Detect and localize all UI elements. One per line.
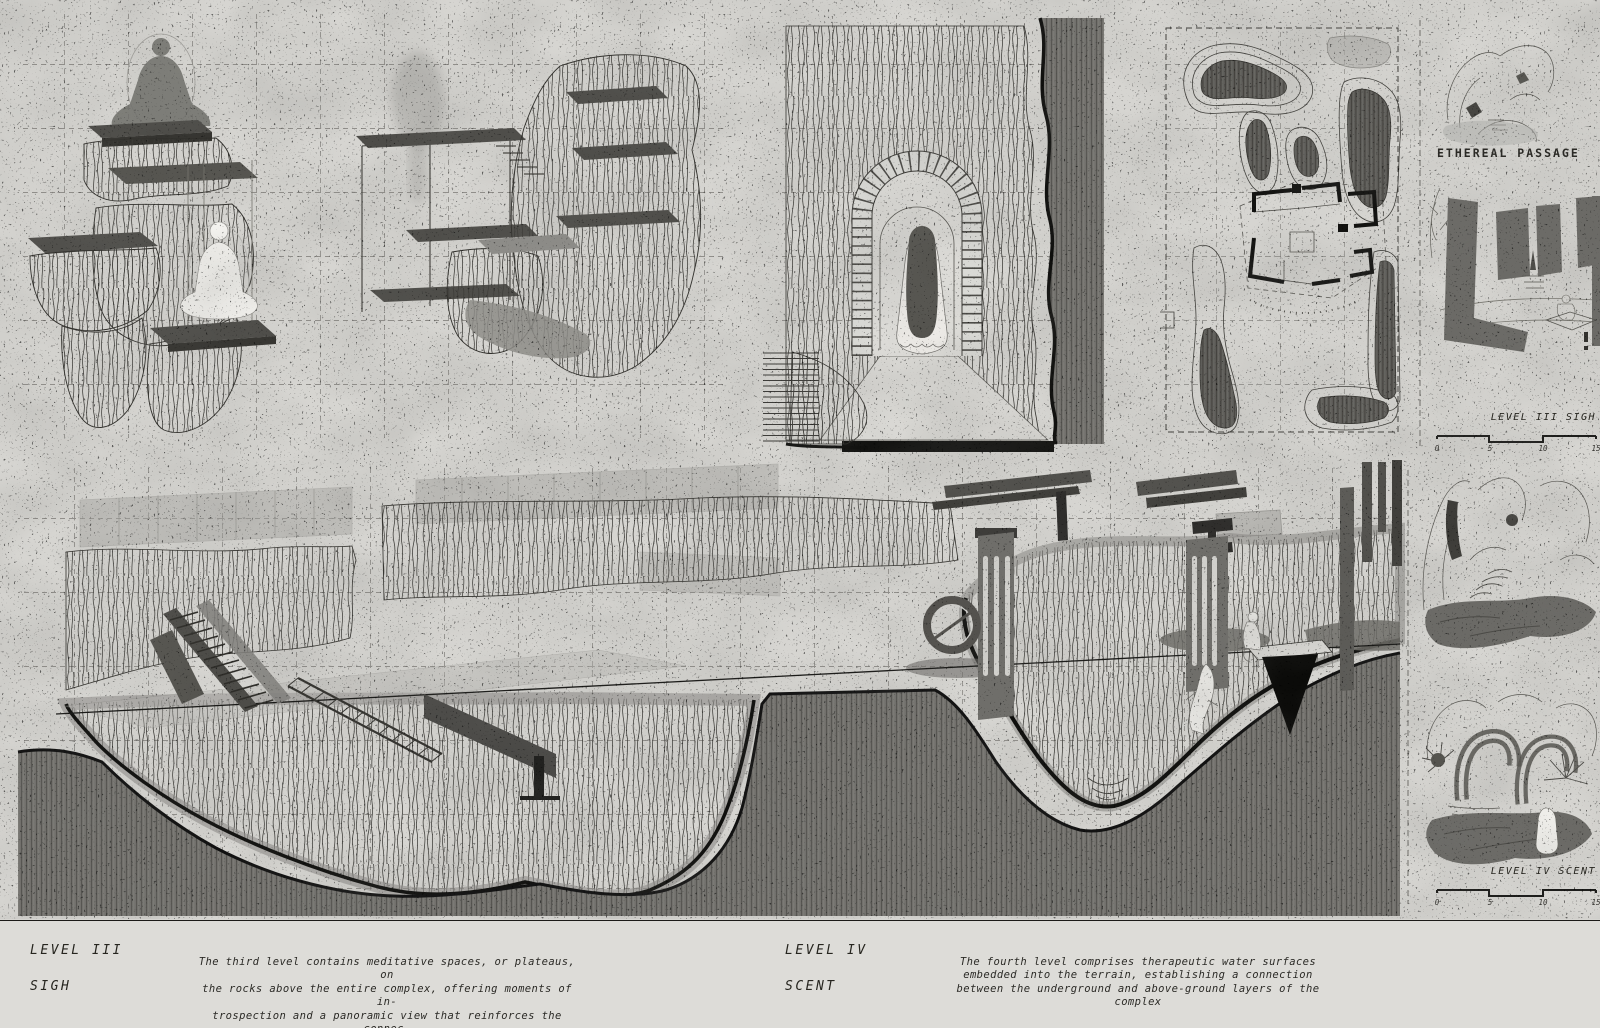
scale-label-level3: LEVEL III SIGH <box>1452 412 1596 423</box>
footer-title-level3-line2: SIGH <box>30 978 123 996</box>
scale-tick: 15 <box>1587 898 1600 907</box>
scale-tick: 5 <box>1481 898 1499 907</box>
scale-tick: 10 <box>1534 898 1552 907</box>
footer-title-level3-line1: LEVEL III <box>30 942 123 960</box>
footer-title-level4-line1: LEVEL IV <box>785 942 868 960</box>
scale-tick: 10 <box>1534 444 1552 453</box>
footer-title-level4: LEVEL IV SCENT <box>785 924 868 1014</box>
board-artwork <box>0 0 1600 1028</box>
scale-tick: 5 <box>1481 444 1499 453</box>
footer-title-level4-line2: SCENT <box>785 978 868 996</box>
paper-speckle-texture <box>0 0 1600 919</box>
scale-tick: 15 <box>1587 444 1600 453</box>
scale-label-level4: LEVEL IV SCENT <box>1452 866 1596 877</box>
architecture-presentation-board: ETHEREAL PASSAGE LEVEL III SIGH 0 5 10 1… <box>0 0 1600 1028</box>
footer-title-level3: LEVEL III SIGH <box>30 924 123 1014</box>
footer-body-level4: The fourth level comprises therapeutic w… <box>952 956 1324 1010</box>
caption-ethereal-passage: ETHEREAL PASSAGE <box>1437 146 1600 160</box>
footer-body-level3: The third level contains meditative spac… <box>198 956 576 1028</box>
scale-tick: 0 <box>1428 898 1446 907</box>
scale-tick: 0 <box>1428 444 1446 453</box>
